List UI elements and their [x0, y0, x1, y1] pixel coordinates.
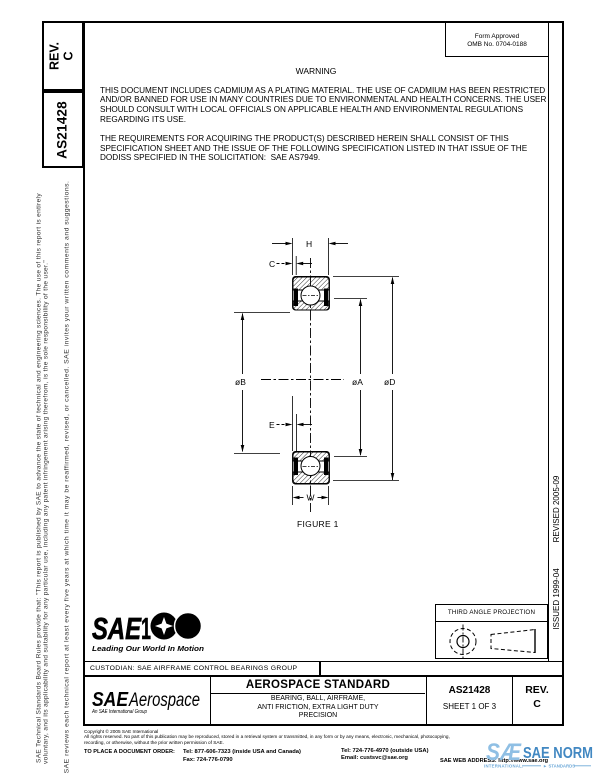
- svg-text:1: 1: [141, 611, 151, 646]
- svg-text:C: C: [269, 259, 275, 269]
- svg-text:SAE: SAE: [92, 689, 129, 711]
- svg-text:øA: øA: [352, 377, 363, 387]
- svg-text:► STANDARDS: ► STANDARDS: [543, 764, 575, 769]
- svg-text:INTERNATIONAL.: INTERNATIONAL.: [484, 764, 523, 769]
- svg-text:Leading Our World In Motion: Leading Our World In Motion: [92, 644, 204, 653]
- svg-text:W: W: [307, 492, 315, 502]
- svg-text:øB: øB: [235, 377, 246, 387]
- svg-text:SÆ: SÆ: [486, 739, 522, 766]
- svg-text:SAE NORM: SAE NORM: [523, 745, 593, 762]
- svg-text:Aerospace: Aerospace: [128, 690, 200, 711]
- svg-text:E: E: [269, 420, 275, 430]
- svg-text:FIGURE 1: FIGURE 1: [297, 519, 339, 529]
- svg-text:H: H: [306, 239, 312, 249]
- svg-text:An SAE International Group: An SAE International Group: [91, 709, 147, 715]
- svg-text:øD: øD: [384, 377, 395, 387]
- svg-text:SAE: SAE: [92, 611, 142, 646]
